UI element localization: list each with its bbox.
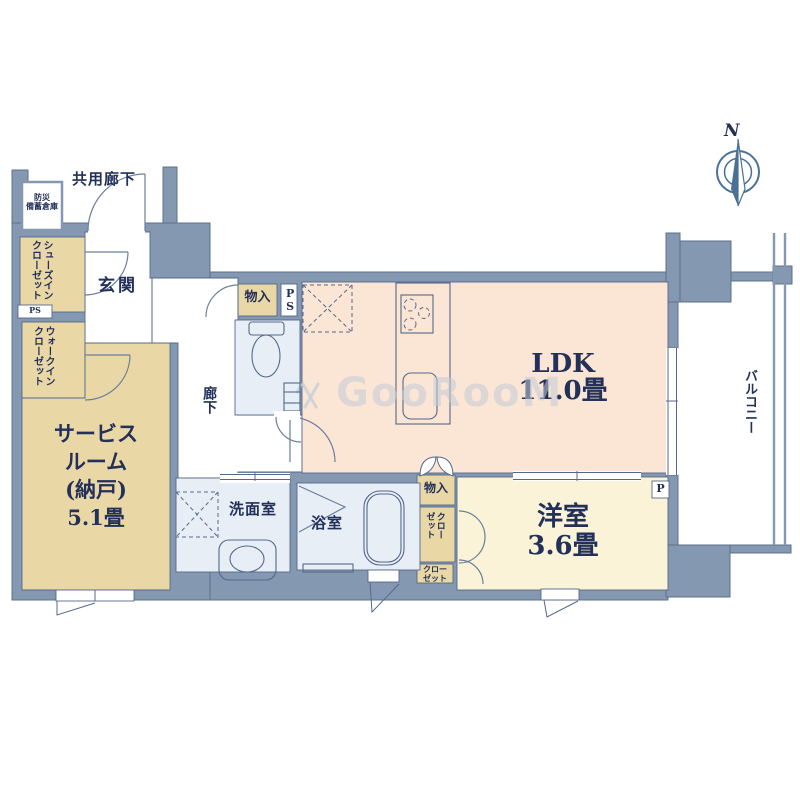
label-western-room: 洋室 3.6畳 — [463, 503, 663, 561]
balcony-window — [666, 348, 678, 475]
label-ps-shaft: PS — [283, 287, 296, 315]
label-bathroom: 浴室 — [311, 515, 343, 532]
label-ps-left: PS — [18, 306, 52, 315]
toilet-door-opening — [274, 411, 300, 420]
wall-pillar-right-b — [680, 241, 731, 302]
label-disaster-storage: 防災 備蓄倉庫 — [22, 193, 62, 211]
ldk-western-sliding-door — [513, 471, 641, 481]
label-pipe-right: P — [652, 483, 669, 496]
label-closet-upper: クロー ゼット — [424, 512, 445, 560]
toilet-floor — [235, 320, 300, 415]
label-service-room: サービス ルーム (納戸) 5.1畳 — [22, 420, 170, 532]
label-closet-lower: クロー ゼット — [417, 565, 453, 583]
watermark-text: GooRooM — [336, 370, 563, 416]
washroom-sliding-door — [220, 473, 290, 483]
label-entrance: 玄関 — [98, 277, 138, 297]
entrance-door-opening — [88, 221, 145, 233]
label-corridor: 廊下 — [201, 386, 217, 428]
label-common-corridor: 共用廊下 — [72, 171, 136, 188]
wall-bottom-right-step — [666, 545, 730, 597]
wall-top-pillar — [163, 167, 177, 223]
floor-plan: 共用廊下 防災 備蓄倉庫 シューズイン クローゼット 玄関 PS ウォークイン … — [0, 0, 800, 800]
label-balcony: バルコニー — [741, 369, 756, 477]
window-western-room — [541, 589, 579, 617]
label-storage-top: 物入 — [238, 291, 277, 306]
wall-balcony-tie — [731, 272, 773, 281]
wall-balcony-post — [773, 266, 792, 284]
label-walk-in-closet: ウォークイン クローゼット — [31, 326, 54, 402]
label-storage-bottom: 物入 — [417, 482, 455, 496]
compass-needle-dark — [731, 139, 738, 206]
compass — [717, 139, 759, 206]
label-washroom: 洗面室 — [229, 501, 277, 518]
wall-balcony-bottom — [730, 545, 791, 553]
window-service-room — [56, 590, 134, 615]
compass-needle-light — [738, 139, 745, 206]
compass-north-label: N — [724, 122, 740, 142]
